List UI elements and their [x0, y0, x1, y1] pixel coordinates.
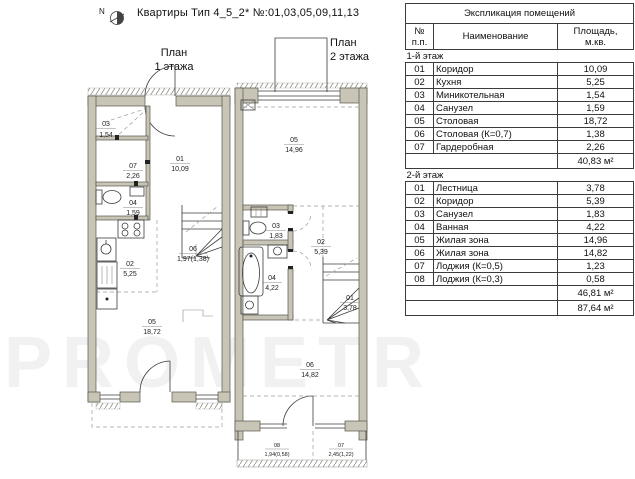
loggia-door-arc: [283, 396, 313, 426]
partition: [243, 240, 293, 245]
wall: [359, 88, 367, 440]
room-area: 3,78: [343, 305, 357, 312]
room-number: 01: [176, 156, 184, 163]
table-row: 08Лоджия (К=0,3)0,58: [406, 273, 634, 286]
row-name: Лоджия (К=0,3): [434, 273, 558, 286]
partition: [288, 269, 293, 320]
floor2-subtotal-row: 46,81 м²: [406, 286, 634, 301]
dimension-hatch: [196, 403, 222, 409]
row-area: 1,54: [558, 89, 634, 102]
row-num: 08: [406, 273, 434, 286]
room-area: 10,09: [171, 166, 189, 173]
wall: [222, 96, 230, 402]
table-row: 04Ванная4,22: [406, 221, 634, 234]
room-area: 1,94(0,58): [264, 452, 289, 458]
table-row: 02Коридор5,39: [406, 195, 634, 208]
room-area: 1,97(1,38): [177, 256, 209, 263]
wall: [172, 392, 196, 402]
dimension-hatch: [237, 83, 367, 88]
room-area: 2,26: [126, 173, 140, 180]
row-num: 01: [406, 63, 434, 76]
door-post: [288, 249, 293, 252]
washbasin-icon: [130, 187, 144, 196]
row-name: Жилая зона: [434, 247, 558, 260]
room-area: 2,45(1,22): [328, 452, 353, 458]
plan1-label: План 1 этажа: [138, 46, 210, 74]
room-number: 03: [102, 121, 110, 128]
wall: [235, 421, 260, 431]
room-area: 14,82: [301, 372, 319, 379]
row-area: 4,22: [558, 221, 634, 234]
floor1-subtotal-row: 40,83 м²: [406, 154, 634, 169]
room-number: 02: [126, 261, 134, 268]
table-row: 05Жилая зона14,96: [406, 234, 634, 247]
row-area: 18,72: [558, 115, 634, 128]
table-row: 07Гардеробная2,26: [406, 141, 634, 154]
sink-icon: [268, 245, 287, 258]
partition: [96, 216, 148, 220]
row-area: 14,96: [558, 234, 634, 247]
table-row: 07Лоджия (К=0,5)1,23: [406, 260, 634, 273]
stairs-icon: [182, 205, 222, 322]
row-name: Столовая: [434, 115, 558, 128]
room-number: 02: [317, 239, 325, 246]
floor-plan-sheet: { "header": { "north": "N", "title": "Кв…: [0, 0, 635, 479]
door-post: [134, 181, 138, 186]
row-area: 10,09: [558, 63, 634, 76]
floor2-section-label: 2-й этаж: [406, 169, 634, 182]
row-name: Санузел: [434, 208, 558, 221]
row-num: 05: [406, 115, 434, 128]
table-row: 06Столовая (К=0,7)1,38: [406, 128, 634, 141]
row-area: 3,78: [558, 182, 634, 195]
floor1-section-row: 1-й этаж: [406, 50, 634, 63]
floor1-section-label: 1-й этаж: [406, 50, 634, 63]
room-number: 04: [268, 275, 276, 282]
floor2-subtotal: 46,81 м²: [558, 286, 634, 301]
room-number: 07: [338, 443, 344, 449]
room-labels-floor2: 05 14,96 03 1,83 02 5,39 04 4,22 01 3,78…: [262, 137, 360, 458]
door-post: [288, 228, 293, 231]
row-num: 02: [406, 76, 434, 89]
floor-plan-2: 05 14,96 03 1,83 02 5,39 04 4,22 01 3,78…: [235, 38, 367, 467]
row-area: 5,39: [558, 195, 634, 208]
empty-cell: [406, 286, 558, 301]
row-name: Ванная: [434, 221, 558, 234]
window: [258, 91, 340, 100]
row-num: 05: [406, 234, 434, 247]
room-labels-floor1: 03 1,54 07 2,26 01 10,09 04 1,59 02 5,25…: [96, 121, 209, 336]
partition: [96, 182, 148, 186]
sheet-title: Квартиры Тип 4_5_2* №:01,03,05,09,11,13: [137, 7, 359, 19]
row-num: 07: [406, 260, 434, 273]
table-header-row: № п.п. Наименование Площадь, м.кв.: [406, 24, 634, 50]
col-header-num: № п.п.: [406, 24, 434, 50]
partition: [243, 315, 293, 320]
washing-machine-icon: [241, 296, 258, 314]
col-header-name: Наименование: [434, 24, 558, 50]
zone-boundary: [243, 206, 359, 396]
wall: [218, 392, 230, 402]
dimension-hatch: [88, 88, 230, 95]
row-area: 1,38: [558, 128, 634, 141]
table-row: 06Жилая зона14,82: [406, 247, 634, 260]
row-name: Жилая зона: [434, 234, 558, 247]
row-name: Столовая (К=0,7): [434, 128, 558, 141]
partition: [243, 205, 293, 210]
toilet-icon: [96, 190, 121, 204]
row-area: 5,25: [558, 76, 634, 89]
window: [196, 395, 218, 399]
wall: [88, 96, 145, 106]
door-swing: [293, 213, 311, 269]
table-row: 01Лестница3,78: [406, 182, 634, 195]
row-num: 03: [406, 89, 434, 102]
kitchen-sink-icon: [97, 238, 116, 261]
table-row: 04Санузел1,59: [406, 102, 634, 115]
room-number: 03: [272, 223, 280, 230]
row-num: 07: [406, 141, 434, 154]
row-name: Миникотельная: [434, 89, 558, 102]
room-number: 08: [274, 443, 280, 449]
room-number: 01: [346, 295, 354, 302]
room-area: 5,25: [123, 271, 137, 278]
table-row: 02Кухня5,25: [406, 76, 634, 89]
door-post: [145, 160, 150, 164]
row-area: 1,83: [558, 208, 634, 221]
total-area: 87,64 м²: [558, 301, 634, 316]
toilet-icon: [243, 221, 266, 235]
svg-text:N: N: [99, 7, 105, 16]
row-name: Гардеробная: [434, 141, 558, 154]
row-area: 1,23: [558, 260, 634, 273]
partition: [288, 231, 293, 251]
room-number: 06: [189, 246, 197, 253]
room-number: 04: [129, 200, 137, 207]
explication-table: Экспликация помещений № п.п. Наименовани…: [405, 3, 634, 316]
cabinet-icon: [97, 262, 117, 309]
room-number: 05: [290, 137, 298, 144]
total-row: 87,64 м²: [406, 301, 634, 316]
room-area: 1,83: [269, 233, 283, 240]
door-post: [288, 211, 293, 214]
row-area: 2,26: [558, 141, 634, 154]
row-num: 03: [406, 208, 434, 221]
room-area: 18,72: [143, 329, 161, 336]
terrace-door-arc: [140, 361, 170, 392]
north-arrow-icon: N: [97, 3, 131, 29]
row-num: 04: [406, 221, 434, 234]
row-name: Коридор: [434, 195, 558, 208]
row-num: 04: [406, 102, 434, 115]
room-area: 1,54: [99, 132, 113, 139]
floor1-subtotal: 40,83 м²: [558, 154, 634, 169]
room-number: 06: [306, 362, 314, 369]
empty-cell: [406, 301, 558, 316]
table-row: 05Столовая18,72: [406, 115, 634, 128]
table-row: 01Коридор10,09: [406, 63, 634, 76]
empty-cell: [406, 154, 558, 169]
floor-plan-1: 03 1,54 07 2,26 01 10,09 04 1,59 02 5,25…: [88, 66, 230, 427]
table-title-row: Экспликация помещений: [406, 4, 634, 24]
row-area: 14,82: [558, 247, 634, 260]
room-area: 1,59: [126, 210, 140, 217]
dimension-hatch: [96, 403, 120, 409]
table-row: 03Миникотельная1,54: [406, 89, 634, 102]
wall: [120, 392, 140, 402]
wall: [88, 392, 100, 402]
col-header-area: Площадь, м.кв.: [558, 24, 634, 50]
row-name: Кухня: [434, 76, 558, 89]
row-area: 0,58: [558, 273, 634, 286]
row-name: Лестница: [434, 182, 558, 195]
window: [100, 395, 120, 399]
plan2-label: План 2 этажа: [330, 36, 402, 64]
row-area: 1,59: [558, 102, 634, 115]
room-area: 4,22: [265, 285, 279, 292]
room-number: 05: [148, 319, 156, 326]
table-row: 03Санузел1,83: [406, 208, 634, 221]
floor2-section-row: 2-й этаж: [406, 169, 634, 182]
row-num: 06: [406, 128, 434, 141]
row-name: Лоджия (К=0,5): [434, 260, 558, 273]
door-post: [115, 135, 119, 140]
door-post: [288, 266, 293, 269]
table-title: Экспликация помещений: [406, 4, 634, 24]
room-number: 07: [129, 163, 137, 170]
room-area: 5,39: [314, 249, 328, 256]
stairs-icon: [323, 257, 359, 323]
room-area: 14,96: [285, 147, 303, 154]
wall: [88, 96, 96, 402]
window: [315, 424, 345, 428]
row-name: Коридор: [434, 63, 558, 76]
row-name: Санузел: [434, 102, 558, 115]
row-num: 02: [406, 195, 434, 208]
wall: [345, 421, 367, 431]
stove-icon: [118, 220, 144, 238]
row-num: 01: [406, 182, 434, 195]
row-num: 06: [406, 247, 434, 260]
